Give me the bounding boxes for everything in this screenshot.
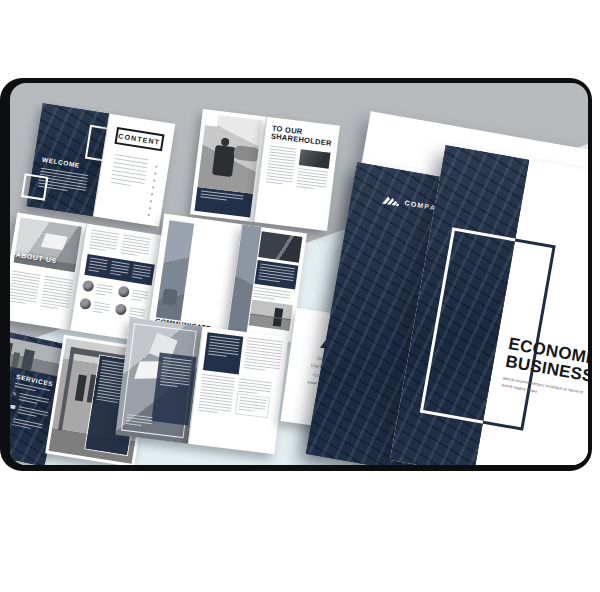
spread-welcome-content: WELCOME CONTENT	[27, 103, 176, 227]
phone-icon: ☎	[10, 404, 17, 410]
content-page: CONTENT	[92, 114, 175, 227]
text-lines	[131, 264, 151, 282]
text-lines	[259, 263, 295, 284]
text-lines	[88, 229, 119, 254]
text-lines	[296, 168, 328, 191]
engine-photo	[259, 231, 303, 262]
text-lines	[110, 261, 130, 279]
spread-collage-text	[115, 318, 288, 455]
quote-box	[255, 260, 298, 289]
shareholder-text-page: TO OUR SHAREHOLDER	[253, 117, 340, 231]
railing-shape	[251, 314, 291, 321]
avatar	[82, 280, 95, 293]
text-lines	[40, 276, 74, 313]
laptop-shape	[41, 233, 68, 250]
welcome-title: WELCOME	[42, 156, 81, 169]
avatar	[79, 298, 92, 311]
text-lines	[18, 406, 49, 421]
avatar	[117, 285, 130, 298]
boxed-paragraph	[235, 393, 270, 418]
figure-silhouette	[75, 375, 87, 402]
store-frame	[58, 347, 75, 431]
text-lines	[200, 190, 244, 202]
bridge-man-photo	[249, 300, 293, 331]
office-photo	[156, 220, 194, 321]
figure-silhouette	[212, 145, 236, 177]
text-lines	[265, 145, 297, 188]
photo-corner-accent	[205, 113, 218, 126]
presentation-card: WELCOME CONTENT	[10, 83, 588, 465]
desk-photo	[13, 217, 81, 272]
brochure-mockup-scene: WELCOME CONTENT	[0, 0, 600, 592]
heart-icon: ♥	[10, 417, 11, 423]
text-lines	[208, 336, 240, 359]
text-lines	[131, 290, 149, 304]
text-lines	[10, 270, 41, 307]
avatar	[115, 303, 128, 316]
edit-icon: ✎	[12, 391, 17, 397]
overlay-text-box	[151, 352, 196, 425]
collage-text-page	[188, 327, 289, 455]
toc-lines	[105, 154, 148, 220]
content-title: CONTENT	[117, 132, 162, 146]
chair-shape	[162, 288, 178, 306]
building-shape	[11, 352, 20, 368]
text-lines	[159, 357, 191, 388]
text-lines	[238, 397, 266, 413]
text-lines	[95, 284, 113, 298]
building-shape	[21, 349, 35, 371]
spread-shareholder: TO OUR SHAREHOLDER	[190, 109, 340, 231]
text-lines	[12, 418, 43, 433]
content-title-box: CONTENT	[114, 127, 165, 152]
text-lines	[238, 378, 272, 395]
text-lines	[120, 234, 151, 259]
hand-shape	[233, 145, 261, 162]
text-lines	[18, 393, 49, 408]
lead-box	[203, 332, 243, 374]
businessman-photo	[197, 113, 261, 193]
inline-photo	[299, 149, 331, 169]
shareholder-title: TO OUR SHAREHOLDER	[270, 125, 333, 148]
company-logo-icon	[381, 194, 400, 207]
text-lines	[88, 258, 108, 276]
text-lines	[198, 374, 236, 417]
text-lines	[92, 302, 110, 316]
text-lines	[243, 337, 283, 379]
toc-page-dots	[147, 161, 159, 222]
